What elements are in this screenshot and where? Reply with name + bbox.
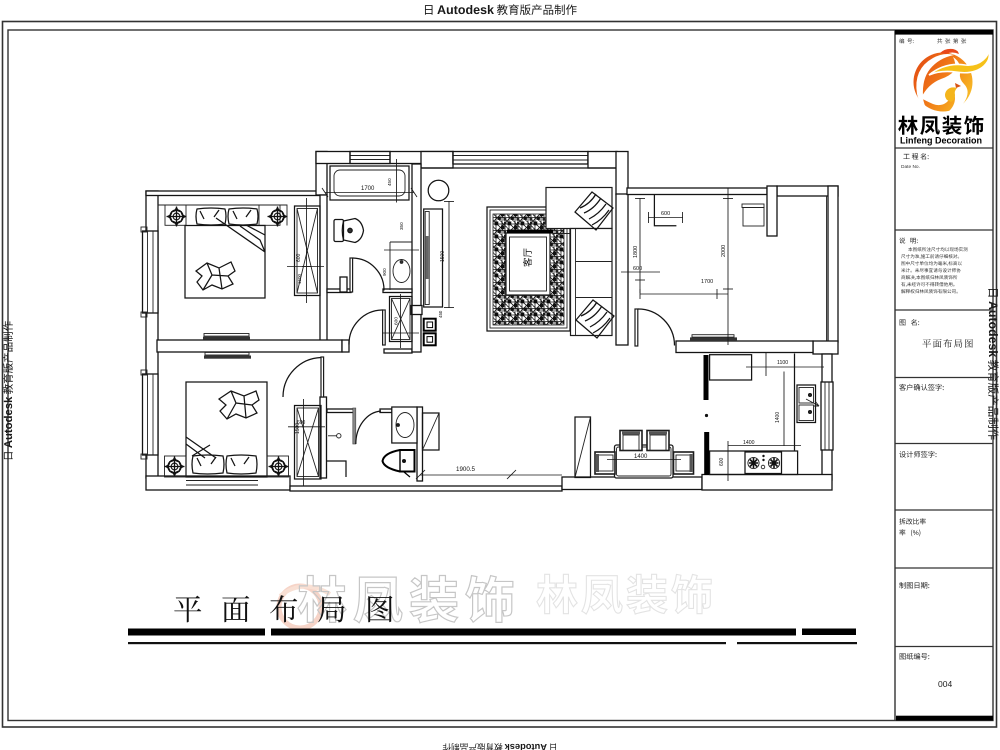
svg-text:450: 450 [387, 178, 392, 186]
svg-text:600: 600 [719, 457, 725, 466]
svg-text:1400: 1400 [634, 454, 648, 460]
svg-text:600: 600 [394, 317, 400, 325]
svg-text:600: 600 [633, 266, 642, 272]
svg-text:450: 450 [438, 310, 443, 318]
svg-text:1700: 1700 [361, 186, 375, 192]
svg-text:900: 900 [382, 268, 387, 276]
svg-text:Date No.: Date No. [901, 164, 920, 170]
svg-text:350: 350 [399, 222, 404, 230]
svg-text:1500: 1500 [297, 273, 302, 284]
svg-text:1800: 1800 [633, 246, 639, 258]
svg-text:1500: 1500 [440, 251, 446, 262]
svg-text:1400: 1400 [775, 412, 781, 423]
svg-text:1900.5: 1900.5 [456, 466, 475, 473]
svg-text:1700: 1700 [701, 279, 713, 285]
svg-text:2000: 2000 [721, 245, 727, 257]
svg-text:1100: 1100 [777, 360, 788, 366]
svg-text:600: 600 [296, 253, 302, 262]
svg-text:004: 004 [938, 679, 952, 689]
svg-text:1500: 1500 [295, 423, 301, 434]
svg-text:600: 600 [661, 211, 670, 217]
svg-text:Linfeng Decoration: Linfeng Decoration [900, 136, 982, 146]
svg-text:1400: 1400 [743, 440, 755, 446]
